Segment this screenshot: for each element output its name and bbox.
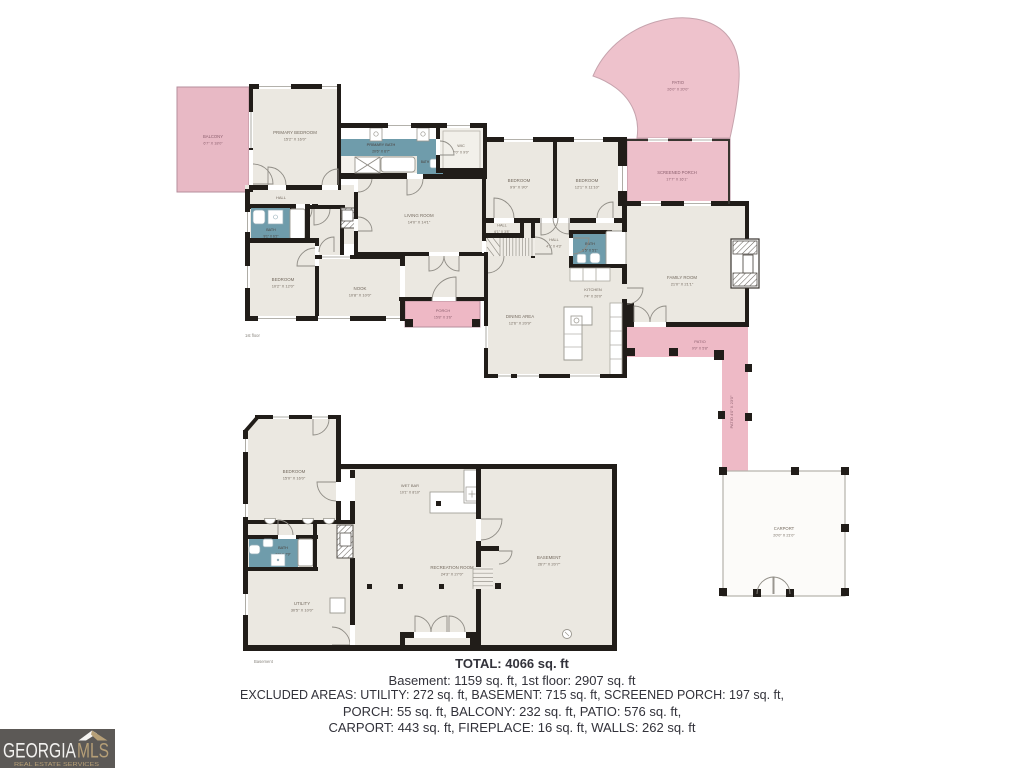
svg-text:20'6" X 6'7": 20'6" X 6'7" <box>372 150 391 154</box>
svg-text:PRIMARY BATH: PRIMARY BATH <box>367 142 396 147</box>
svg-text:12'1" X 11'10": 12'1" X 11'10" <box>575 185 600 190</box>
svg-text:PATIO: PATIO <box>672 80 685 85</box>
svg-text:MLS: MLS <box>77 740 109 763</box>
svg-text:4'1" X 4'3": 4'1" X 4'3" <box>546 245 562 249</box>
svg-text:WET BAR: WET BAR <box>401 483 419 488</box>
svg-text:BEDROOM: BEDROOM <box>576 178 599 183</box>
svg-text:HALL: HALL <box>549 238 559 242</box>
svg-text:NOOK: NOOK <box>354 286 367 291</box>
svg-text:10'1" X 8'10": 10'1" X 8'10" <box>400 491 421 495</box>
svg-text:FAMILY ROOM: FAMILY ROOM <box>667 275 697 280</box>
svg-text:20'0" X 21'0": 20'0" X 21'0" <box>773 534 795 538</box>
svg-text:BALCONY: BALCONY <box>203 134 223 139</box>
svg-text:BATH: BATH <box>421 160 430 164</box>
svg-text:7'0" X 9'0": 7'0" X 9'0" <box>453 151 470 155</box>
svg-text:BEDROOM: BEDROOM <box>283 469 306 474</box>
svg-text:26'7" X 20'7": 26'7" X 20'7" <box>538 562 561 567</box>
svg-text:24'3" X 27'0": 24'3" X 27'0" <box>441 572 464 577</box>
svg-text:BATH: BATH <box>278 546 288 550</box>
svg-text:PRIMARY BEDROOM: PRIMARY BEDROOM <box>273 130 317 135</box>
svg-text:CARPORT: CARPORT <box>774 526 795 531</box>
svg-text:15'2" X 16'0": 15'2" X 16'0" <box>284 137 307 142</box>
svg-text:DINING AREA: DINING AREA <box>506 314 534 319</box>
svg-text:UTILITY: UTILITY <box>294 601 310 606</box>
svg-text:15'0" X 16'0": 15'0" X 16'0" <box>283 476 306 481</box>
svg-text:GEORGIA: GEORGIA <box>3 740 76 763</box>
svg-text:9'9" X 5'8": 9'9" X 5'8" <box>692 347 709 351</box>
svg-text:9'9" X 9'0": 9'9" X 9'0" <box>510 185 529 190</box>
svg-text:RECREATION ROOM: RECREATION ROOM <box>430 565 474 570</box>
svg-text:BATH: BATH <box>266 228 276 232</box>
svg-text:PATIO 4'0" X 23'0": PATIO 4'0" X 23'0" <box>729 395 734 428</box>
svg-text:10'2" X 12'0": 10'2" X 12'0" <box>272 284 295 289</box>
svg-text:14'0" X 14'1": 14'0" X 14'1" <box>408 220 431 225</box>
svg-text:LIVING ROOM: LIVING ROOM <box>404 213 434 218</box>
svg-text:SCREENED PORCH: SCREENED PORCH <box>657 170 697 175</box>
svg-text:HALL: HALL <box>497 224 507 228</box>
svg-text:9'1" X 6'2": 9'1" X 6'2" <box>264 235 280 239</box>
svg-text:REAL ESTATE SERVICES: REAL ESTATE SERVICES <box>14 762 99 768</box>
svg-text:1st floor: 1st floor <box>245 333 261 338</box>
svg-text:15'8" X 3'6": 15'8" X 3'6" <box>434 316 453 320</box>
svg-text:7'4" X 20'0": 7'4" X 20'0" <box>584 295 603 299</box>
svg-text:BEDROOM: BEDROOM <box>272 277 295 282</box>
svg-text:6'7" X 18'0": 6'7" X 18'0" <box>203 142 223 146</box>
svg-text:WIC: WIC <box>457 143 465 148</box>
svg-text:KITCHEN: KITCHEN <box>584 287 602 292</box>
svg-text:PORCH: PORCH <box>436 308 451 313</box>
svg-text:HALL: HALL <box>276 195 287 200</box>
svg-text:PATIO: PATIO <box>694 339 705 344</box>
svg-text:26'0" X 20'0": 26'0" X 20'0" <box>667 88 689 92</box>
svg-text:21'0" X 21'1": 21'0" X 21'1" <box>671 282 694 287</box>
svg-text:12'6" X 20'9": 12'6" X 20'9" <box>509 321 532 326</box>
svg-text:10'8" X 10'0": 10'8" X 10'0" <box>349 293 372 298</box>
svg-text:17'7" X 16'1": 17'7" X 16'1" <box>666 178 688 182</box>
svg-text:BEDROOM: BEDROOM <box>508 178 531 183</box>
svg-text:BASEMENT: BASEMENT <box>537 555 561 560</box>
svg-text:BATH: BATH <box>585 242 595 246</box>
svg-text:30'5" X 10'0": 30'5" X 10'0" <box>291 608 314 613</box>
